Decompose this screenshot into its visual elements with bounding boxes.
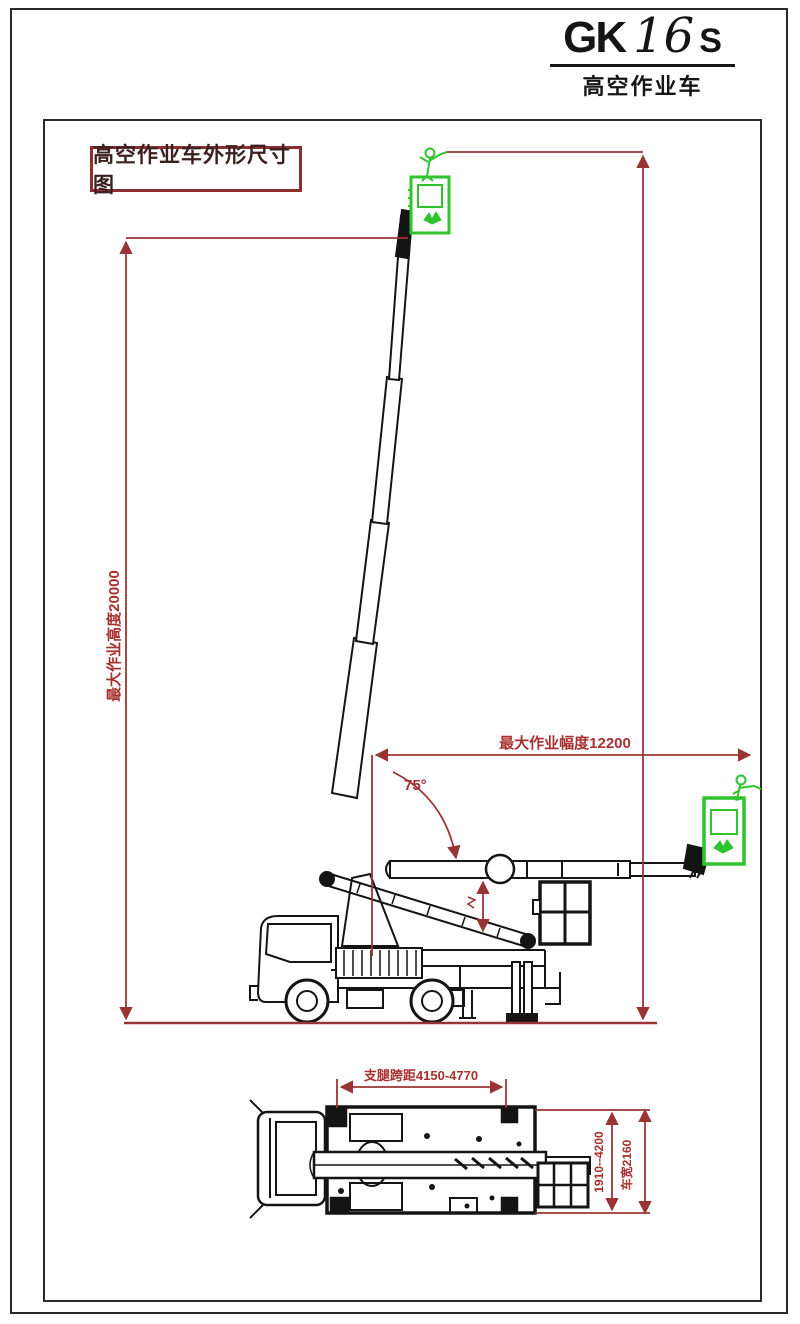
subframe-pedestal <box>336 948 422 978</box>
outrigger-leg-1 <box>512 962 520 1016</box>
boom-horizontal <box>386 845 710 883</box>
pad-tr <box>502 1109 517 1122</box>
pad-br <box>502 1198 517 1211</box>
boom-section-4 <box>332 638 377 798</box>
boom-section-2 <box>372 377 402 524</box>
outrigger-foot-2 <box>521 1014 537 1021</box>
stowed-basket-hinge <box>533 900 540 914</box>
pad-bl <box>331 1198 348 1211</box>
arm-hinge-right <box>521 934 535 948</box>
operator-figure-right <box>733 776 761 801</box>
front-wheel <box>286 980 328 1022</box>
arm-hinge-left <box>320 872 334 886</box>
truck-side-view <box>250 916 560 1022</box>
dim-outrigger-long-hooks <box>337 1079 506 1108</box>
rear-wheel <box>411 980 453 1022</box>
boom-sheave <box>486 855 514 883</box>
drawing-sheet: GK 16 S 高空作业车 高空作业车外形尺寸图 <box>0 0 800 1324</box>
dimension-lines <box>124 152 750 1213</box>
platform-right <box>704 776 761 865</box>
turret-tower <box>342 874 398 946</box>
main-boom-raised <box>332 210 414 798</box>
stowed-basket <box>533 882 590 944</box>
dim-outrigger-long-label: 支腿跨距4150-4770 <box>363 1068 478 1083</box>
outrigger-leg-2 <box>524 962 532 1016</box>
dimension-drawing-canvas: 最大作业高度20000 最大作业幅度12200 75° 支腿跨距4150-477… <box>0 0 800 1324</box>
dim-max-height-label: 最大作业高度20000 <box>105 570 123 702</box>
dim-vehicle-width-label: 车宽2160 <box>619 1139 634 1190</box>
dim-small-mark <box>468 897 475 908</box>
operator-head-top <box>426 149 435 158</box>
operator-head-right <box>737 776 746 785</box>
chassis-box-1 <box>347 990 383 1008</box>
truck-top-view <box>250 1100 590 1218</box>
dim-trans-span-label: 1910--4200 <box>592 1131 606 1193</box>
boom-angle-label: 75° <box>404 777 427 794</box>
boom-section-3 <box>356 520 389 644</box>
operator-body-right <box>733 785 761 800</box>
pad-tl <box>329 1109 346 1126</box>
dim-max-radius-label: 最大作业幅度12200 <box>499 734 631 752</box>
platform-top <box>408 149 449 234</box>
